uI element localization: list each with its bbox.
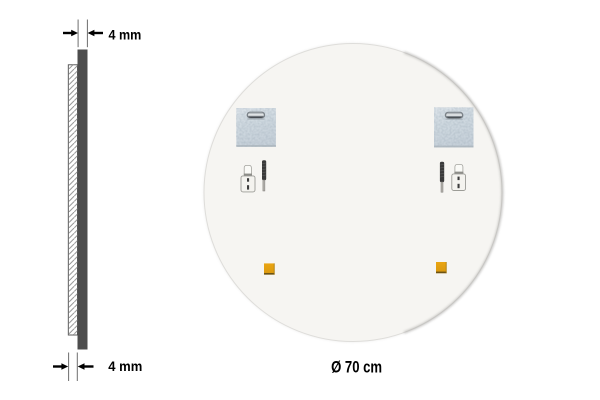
svg-text:4 mm: 4 mm	[109, 27, 142, 42]
svg-text:4 mm: 4 mm	[108, 359, 142, 374]
svg-text:Ø 70 cm: Ø 70 cm	[331, 358, 382, 377]
